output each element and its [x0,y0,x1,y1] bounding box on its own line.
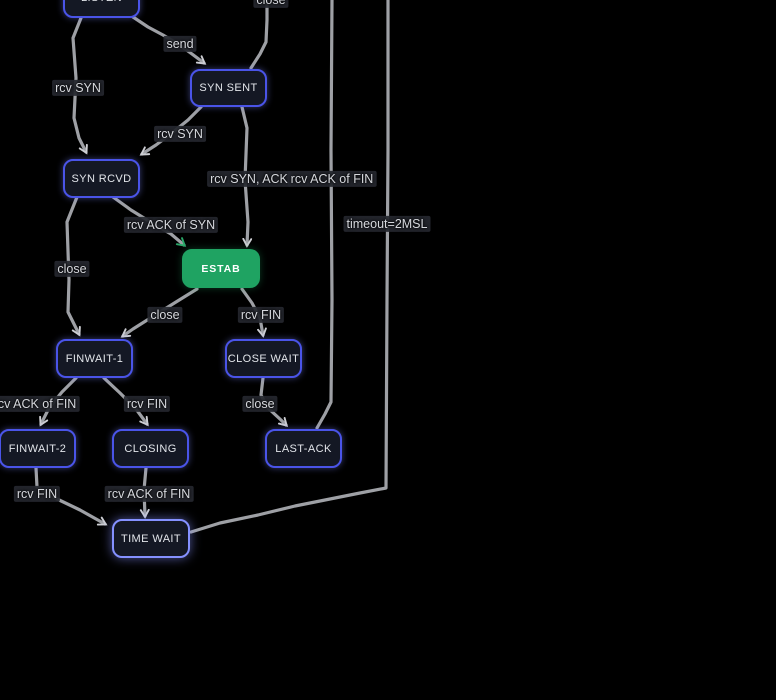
edge-label-finwait1-to-finwait2: rcv ACK of FIN [0,396,79,412]
edge-label-estab-to-closewait: rcv FIN [238,307,284,323]
state-node-label: FINWAIT-2 [9,443,67,455]
state-node-time-wait[interactable]: TIME WAIT [112,519,190,558]
edge-label-listen-to-synrcvd: rcv SYN [52,80,104,96]
edge-label-listen-to-synsent: send [163,36,196,52]
edge-label-synsent-to-estab: rcv SYN, ACK [207,171,291,187]
edge-label-estab-to-finwait1: close [147,307,182,323]
state-node-label: LISTEN [81,0,122,4]
state-node-label: ESTAB [201,263,240,275]
state-node-estab[interactable]: ESTAB [182,249,260,288]
edge-synsent-to-closed [251,0,267,68]
state-node-label: SYN RCVD [71,173,131,185]
state-node-last-ack[interactable]: LAST-ACK [265,429,342,468]
edge-label-synrcvd-to-finwait1: close [54,261,89,277]
state-node-label: CLOSING [124,443,176,455]
edge-label-timewait-to-closed: timeout=2MSL [344,216,431,232]
state-node-finwait-2[interactable]: FINWAIT-2 [0,429,76,468]
edge-label-closing-to-timewait: rcv ACK of FIN [105,486,194,502]
state-node-label: CLOSE WAIT [228,353,299,365]
edge-lastack-to-closed [317,0,332,428]
tcp-state-diagram-canvas: rcv SYNsendclosercv SYNrcv SYN, ACKrcv A… [0,0,776,700]
state-node-label: SYN SENT [199,82,257,94]
state-node-label: TIME WAIT [121,533,181,545]
edge-label-lastack-to-closed: rcv ACK of FIN [288,171,377,187]
state-node-close-wait[interactable]: CLOSE WAIT [225,339,302,378]
state-node-label: FINWAIT-1 [66,353,124,365]
edge-label-closewait-to-lastack: close [242,396,277,412]
edge-label-finwait2-to-timewait: rcv FIN [14,486,60,502]
state-node-closing[interactable]: CLOSING [112,429,189,468]
state-node-label: LAST-ACK [275,443,331,455]
edge-label-finwait1-to-closing: rcv FIN [124,396,170,412]
state-node-syn-sent[interactable]: SYN SENT [190,69,267,107]
edge-label-synsent-to-synrcvd: rcv SYN [154,126,206,142]
state-node-finwait-1[interactable]: FINWAIT-1 [56,339,133,378]
state-node-syn-rcvd[interactable]: SYN RCVD [63,159,140,198]
edge-label-synrcvd-to-estab: rcv ACK of SYN [124,217,218,233]
edge-label-synsent-to-closed: close [253,0,288,8]
state-node-listen[interactable]: LISTEN [63,0,140,18]
